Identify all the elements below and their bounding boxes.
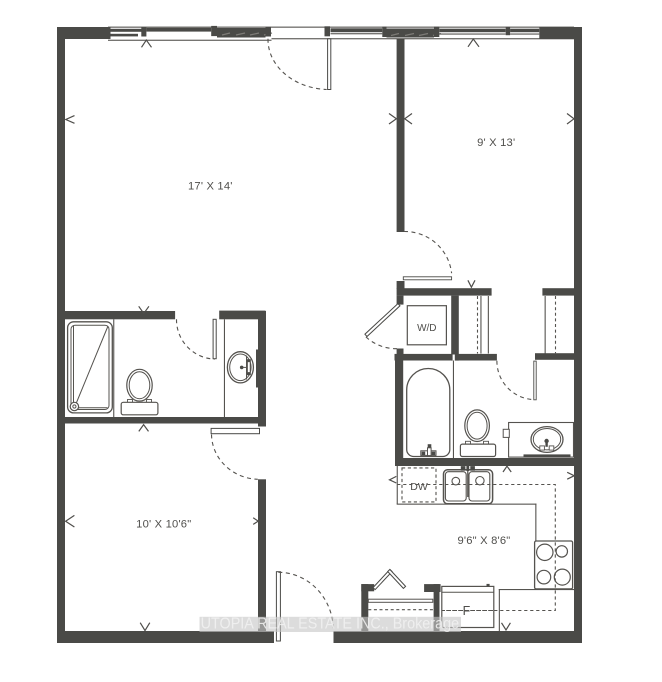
svg-text:DW: DW: [410, 481, 428, 493]
svg-text:9'6" X 8'6": 9'6" X 8'6": [458, 535, 511, 547]
svg-text:17' X 14': 17' X 14': [188, 180, 233, 192]
svg-text:W/D: W/D: [417, 323, 436, 334]
svg-text:9' X 13': 9' X 13': [477, 137, 515, 149]
svg-text:UTOPIA REAL ESTATE INC., Broke: UTOPIA REAL ESTATE INC., Brokerage: [201, 616, 460, 633]
svg-text:10' X 10'6": 10' X 10'6": [136, 518, 191, 530]
